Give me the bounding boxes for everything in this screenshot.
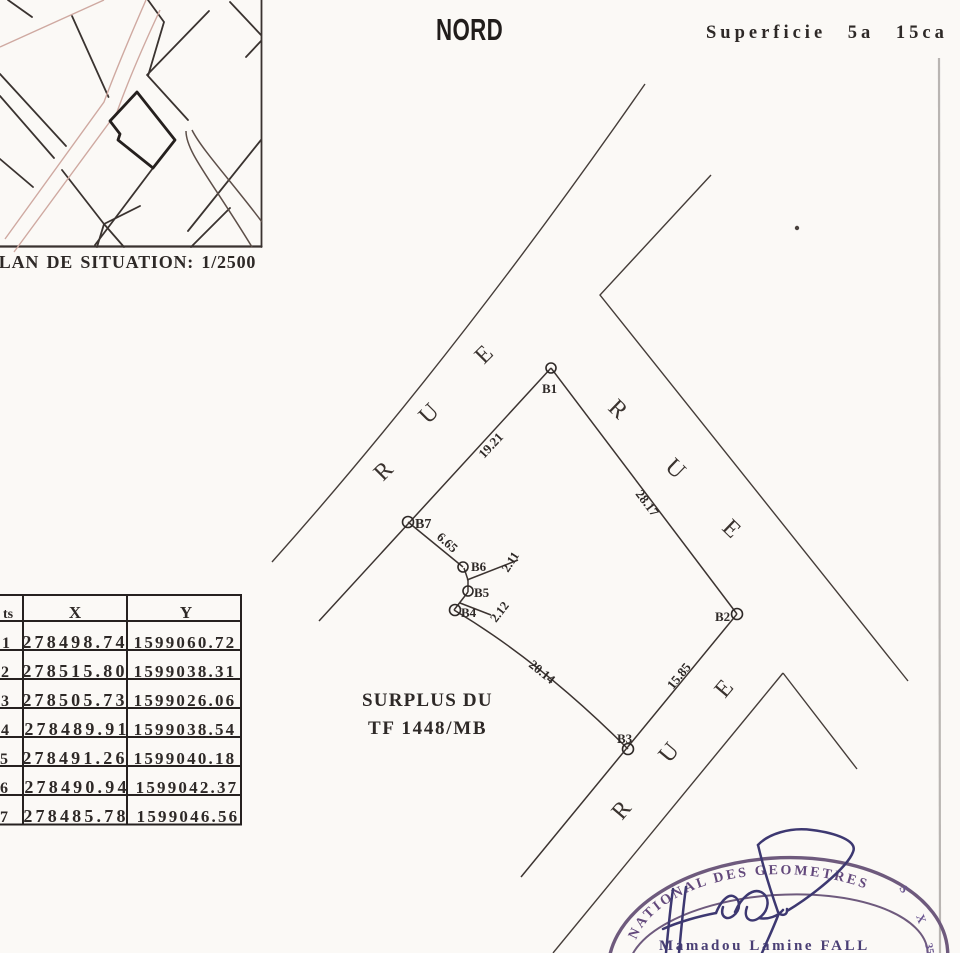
svg-text:4: 4	[1, 722, 9, 739]
svg-text:1599046.56: 1599046.56	[137, 807, 240, 826]
svg-text:1: 1	[2, 635, 10, 652]
svg-text:2: 2	[1, 664, 9, 681]
svg-text:1599060.72: 1599060.72	[134, 633, 237, 652]
svg-text:278505.73: 278505.73	[22, 690, 127, 710]
svg-text:3: 3	[1, 693, 9, 710]
svg-text:B7: B7	[415, 517, 431, 532]
svg-text:1599026.06: 1599026.06	[134, 691, 237, 710]
svg-text:B6: B6	[471, 559, 487, 574]
svg-text:Y: Y	[180, 603, 192, 622]
svg-text:ts: ts	[3, 607, 14, 622]
svg-text:1599038.31: 1599038.31	[134, 662, 237, 681]
svg-text:PLAN DE SITUATION: 1/2500: PLAN DE SITUATION: 1/2500	[0, 252, 256, 272]
svg-text:SURPLUS DU: SURPLUS DU	[362, 690, 493, 711]
svg-text:7: 7	[0, 809, 8, 826]
svg-text:278490.94: 278490.94	[24, 777, 129, 797]
svg-text:B5: B5	[474, 585, 490, 600]
svg-text:TF 1448/MB: TF 1448/MB	[368, 718, 487, 739]
svg-text:278515.80: 278515.80	[22, 661, 127, 681]
svg-text:B2: B2	[715, 609, 730, 624]
svg-text:B4: B4	[461, 605, 477, 620]
svg-text:X: X	[69, 603, 82, 622]
svg-text:1599040.18: 1599040.18	[134, 749, 237, 768]
svg-text:1599038.54: 1599038.54	[134, 720, 237, 739]
svg-text:278489.91: 278489.91	[24, 719, 129, 739]
svg-text:Superficie 5a 15ca: Superficie 5a 15ca	[706, 23, 948, 43]
svg-text:B1: B1	[542, 381, 557, 396]
svg-text:278498.74: 278498.74	[22, 632, 127, 652]
svg-text:6: 6	[0, 780, 8, 797]
svg-text:1599042.37: 1599042.37	[136, 778, 239, 797]
svg-text:NORD: NORD	[436, 12, 503, 46]
svg-text:B3: B3	[617, 731, 633, 746]
svg-text:278491.26: 278491.26	[22, 748, 127, 768]
svg-text:5: 5	[0, 751, 8, 768]
svg-text:278485.78: 278485.78	[23, 806, 128, 826]
svg-text:35: 35	[922, 942, 936, 953]
